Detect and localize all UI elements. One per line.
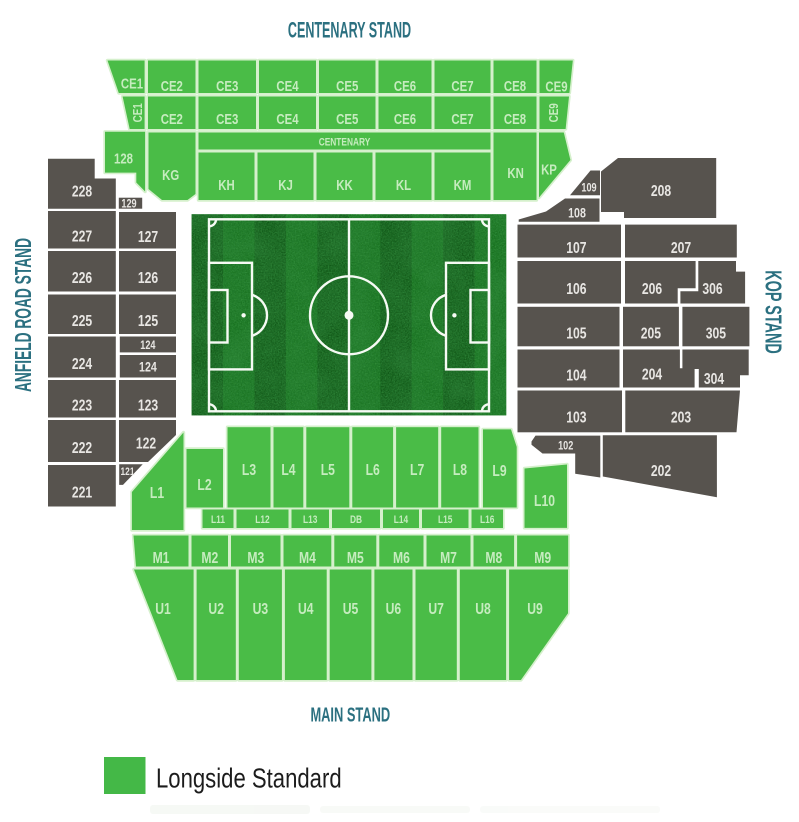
svg-text:U5: U5 [343,600,359,618]
svg-text:L4: L4 [281,461,295,479]
svg-text:L9: L9 [492,462,506,480]
svg-text:122: 122 [136,435,156,453]
svg-text:CE2: CE2 [161,110,183,127]
svg-text:MAIN STAND: MAIN STAND [310,704,390,727]
svg-text:129: 129 [121,198,136,212]
svg-text:U1: U1 [155,600,171,618]
svg-text:CE7: CE7 [451,77,473,94]
svg-text:M6: M6 [393,550,410,568]
svg-text:223: 223 [72,397,92,415]
svg-text:L13: L13 [303,514,318,526]
svg-text:207: 207 [671,239,691,257]
svg-text:KH: KH [218,176,234,193]
svg-text:CE5: CE5 [336,110,359,127]
svg-text:125: 125 [138,312,158,330]
svg-text:306: 306 [702,280,722,298]
svg-text:206: 206 [642,280,662,298]
svg-text:123: 123 [138,397,158,415]
svg-text:105: 105 [566,325,586,343]
svg-text:208: 208 [651,182,671,200]
svg-text:M3: M3 [247,550,264,568]
svg-text:CE3: CE3 [216,77,238,94]
svg-text:KN: KN [507,165,523,182]
svg-text:L16: L16 [480,514,495,526]
svg-text:CE9: CE9 [548,103,562,122]
svg-text:CE8: CE8 [504,110,526,127]
svg-text:106: 106 [566,280,586,298]
svg-text:L14: L14 [394,514,409,526]
svg-text:ANFIELD ROAD STAND: ANFIELD ROAD STAND [11,238,37,392]
svg-text:U4: U4 [298,600,314,618]
svg-text:228: 228 [72,183,92,201]
svg-text:CE4: CE4 [276,110,299,127]
svg-text:M2: M2 [201,550,218,568]
svg-text:U6: U6 [386,600,402,618]
svg-text:KK: KK [336,176,353,193]
svg-text:M9: M9 [534,550,551,568]
svg-text:L12: L12 [255,514,270,526]
svg-text:M5: M5 [347,550,364,568]
svg-text:L15: L15 [438,514,453,526]
svg-text:221: 221 [72,484,92,502]
svg-text:U8: U8 [475,600,491,618]
svg-text:L5: L5 [321,461,335,479]
svg-text:CE2: CE2 [161,77,183,94]
svg-text:L3: L3 [242,461,256,479]
svg-text:KM: KM [454,176,472,193]
svg-text:CE5: CE5 [336,77,359,94]
svg-text:304: 304 [704,370,724,388]
svg-text:L2: L2 [197,476,211,494]
svg-text:224: 224 [72,355,92,373]
svg-text:226: 226 [72,269,92,287]
svg-text:CE1: CE1 [132,103,146,123]
svg-text:U2: U2 [208,600,224,618]
svg-text:124: 124 [140,339,155,353]
svg-text:DB: DB [350,514,362,526]
svg-text:225: 225 [72,312,92,330]
svg-text:103: 103 [566,409,586,427]
svg-text:CE3: CE3 [216,110,238,127]
svg-text:U9: U9 [527,600,543,618]
svg-text:127: 127 [138,228,158,246]
svg-text:CE6: CE6 [394,110,416,127]
svg-text:202: 202 [651,462,671,480]
svg-text:126: 126 [138,269,158,287]
svg-text:108: 108 [568,205,586,221]
svg-text:M1: M1 [153,550,170,568]
svg-text:104: 104 [566,367,586,385]
svg-text:KOP STAND: KOP STAND [759,270,786,354]
svg-text:KG: KG [162,166,179,183]
svg-text:107: 107 [566,239,586,257]
svg-text:109: 109 [581,181,596,195]
svg-text:CENTENARY STAND: CENTENARY STAND [288,18,411,43]
svg-text:205: 205 [641,325,661,343]
svg-text:CENTENARY: CENTENARY [319,137,371,149]
svg-text:128: 128 [114,150,133,167]
svg-text:CE9: CE9 [545,78,567,95]
svg-text:U3: U3 [253,600,269,618]
svg-text:L10: L10 [534,492,555,510]
svg-text:KJ: KJ [278,176,293,193]
svg-text:L11: L11 [211,514,225,526]
svg-text:305: 305 [706,325,726,343]
svg-text:121: 121 [121,466,135,478]
svg-text:222: 222 [72,439,92,457]
svg-text:U7: U7 [428,600,444,618]
svg-text:L1: L1 [150,484,164,502]
svg-text:CE8: CE8 [504,77,526,94]
svg-text:203: 203 [671,409,691,427]
svg-text:CE4: CE4 [276,77,299,94]
svg-text:CE1: CE1 [121,75,144,92]
svg-text:L7: L7 [410,461,424,479]
svg-text:CE6: CE6 [394,77,416,94]
svg-text:CE7: CE7 [451,110,473,127]
svg-text:KP: KP [541,161,557,178]
svg-text:L6: L6 [366,461,380,479]
svg-text:L8: L8 [453,461,467,479]
svg-text:204: 204 [642,366,662,384]
svg-text:M4: M4 [299,550,316,568]
svg-text:KL: KL [396,176,411,193]
svg-text:M8: M8 [485,550,502,568]
svg-text:124: 124 [139,359,157,375]
svg-text:102: 102 [558,440,573,454]
svg-text:M7: M7 [440,550,457,568]
svg-text:Longside Standard: Longside Standard [156,763,342,794]
svg-text:227: 227 [72,228,92,246]
